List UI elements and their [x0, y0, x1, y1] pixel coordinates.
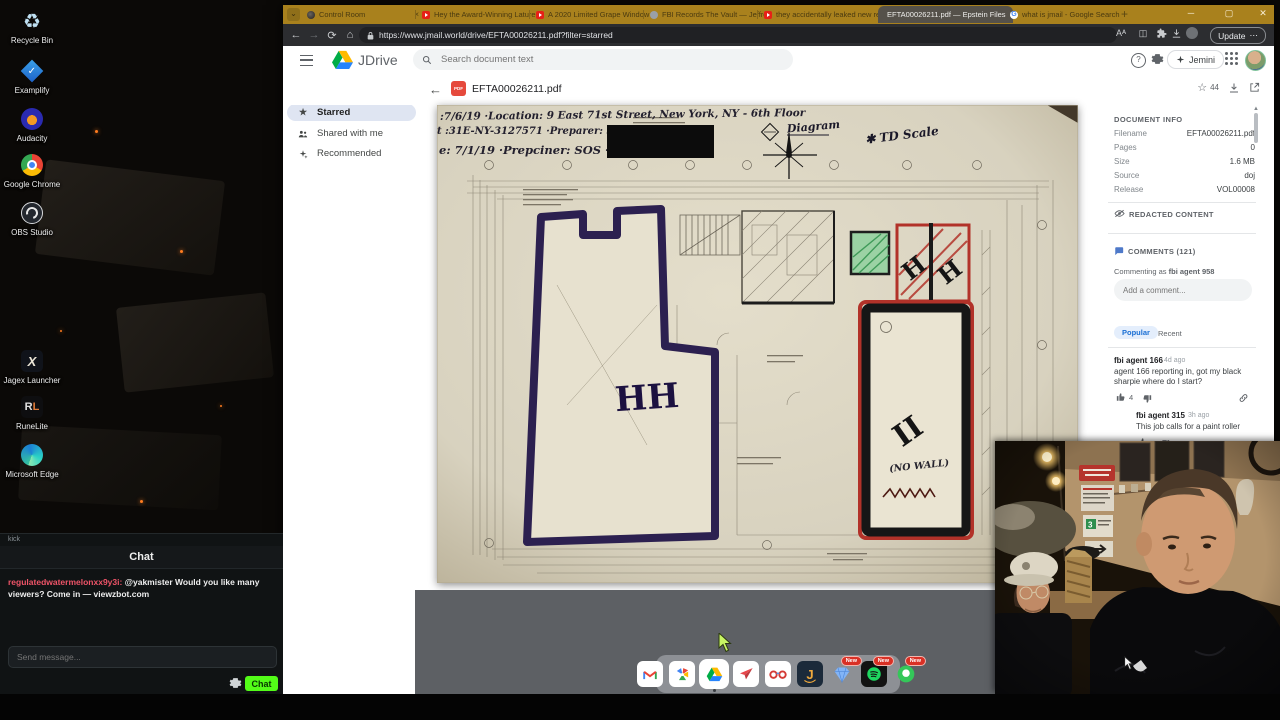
document-search-bar[interactable]: [413, 49, 793, 70]
help-icon[interactable]: ?: [1131, 53, 1146, 68]
chat-message-input[interactable]: [8, 646, 277, 668]
scroll-up-arrow[interactable]: ▲: [1253, 106, 1259, 112]
gem-dock-icon[interactable]: New: [829, 661, 855, 687]
star-count: 44: [1210, 83, 1219, 92]
browser-tab-fbi-vault[interactable]: FBI Records The Vault — Jeffrey×: [645, 7, 766, 22]
menu-icon[interactable]: [300, 55, 313, 66]
add-comment-input[interactable]: [1114, 279, 1252, 301]
jagex-icon: X: [19, 348, 45, 374]
window-close-button[interactable]: ✕: [1255, 6, 1271, 21]
sparkle-icon: [1176, 55, 1185, 64]
like-count: 4: [1129, 393, 1133, 402]
runelite-icon: RL: [19, 394, 45, 420]
desktop-wallpaper-stone: [116, 292, 274, 392]
apps-grid-icon[interactable]: [1225, 52, 1228, 55]
jmail-dock-icon[interactable]: [637, 661, 663, 687]
new-badge: New: [873, 656, 894, 666]
ember-spark: [180, 250, 183, 253]
marker-hh: HH: [614, 376, 681, 420]
youtube-favicon: [422, 11, 430, 19]
window-maximize-button[interactable]: ▢: [1221, 6, 1237, 21]
comment-text: agent 166 reporting in, got my black sha…: [1114, 367, 1252, 388]
field-value: EFTA00026211.pdf: [1187, 129, 1255, 138]
jamazon-dock-icon[interactable]: J: [797, 661, 823, 687]
desktop-icon-runelite[interactable]: RL RuneLite: [0, 394, 64, 431]
lock-icon: [367, 31, 374, 40]
active-app-dot: [713, 689, 716, 692]
examplify-icon: ✓: [19, 58, 45, 84]
desktop-icon-examplify[interactable]: ✓ Examplify: [0, 58, 64, 95]
red-glasses-dock-icon[interactable]: [765, 661, 791, 687]
webcam-overlay: 3: [995, 441, 1280, 694]
tab-separator: [415, 10, 416, 19]
youtube-favicon: [536, 11, 544, 19]
profile-avatar-icon[interactable]: [1186, 27, 1198, 39]
divider: [1108, 233, 1256, 234]
field-value: VOL00008: [1217, 185, 1255, 194]
ember-spark: [140, 500, 143, 503]
browser-toolbar: ← → ⟳ ⌂ https://www.jmail.world/drive/EF…: [283, 24, 1274, 46]
chat-header: Chat: [0, 546, 283, 569]
sidebar-item-shared-with-me[interactable]: Shared with me: [287, 125, 416, 142]
document-info-title: DOCUMENT INFO: [1114, 115, 1183, 124]
browser-tab-control-room[interactable]: Control Room×: [302, 7, 424, 22]
browser-tab-youtube-1[interactable]: Hey the Award-Winning Lature, Y×: [417, 7, 538, 22]
browser-tab-active-pdf[interactable]: EFTA00026211.pdf — Epstein Files×: [878, 6, 1013, 23]
tab-separator: [643, 10, 644, 19]
new-badge: New: [905, 656, 926, 666]
desktop-icon-jagex-launcher[interactable]: X Jagex Launcher: [0, 348, 64, 385]
open-in-new-icon[interactable]: [1249, 82, 1260, 93]
search-icon: [422, 55, 432, 65]
edge-icon: [19, 442, 45, 468]
browser-tab-youtube-3[interactable]: they accidentally leaked new repl×: [759, 7, 886, 22]
download-icon[interactable]: [1171, 28, 1182, 39]
redaction-box: [607, 125, 714, 158]
comment-time: 3h ago: [1188, 412, 1209, 419]
comments-title: COMMENTS (121): [1128, 247, 1196, 256]
eye-off-icon: [1114, 209, 1125, 218]
ember-spark: [60, 330, 62, 332]
browser-tab-google-search[interactable]: G what is jmail - Google Search×: [1005, 7, 1122, 22]
commenting-as-line: Commenting as fbi agent 958: [1114, 267, 1214, 276]
screen: ♻ Recycle Bin ✓ Examplify Audacity Googl…: [0, 0, 1280, 720]
stream-cursor-green: [718, 633, 734, 653]
field-value: 0: [1251, 143, 1255, 152]
tab-separator: [529, 10, 530, 19]
tab-recent[interactable]: Recent: [1158, 329, 1182, 338]
side-panel-icon[interactable]: ◫: [1134, 28, 1152, 39]
browser-tab-youtube-2[interactable]: A 2020 Limited Grape Window×: [531, 7, 652, 22]
desktop-icon-microsoft-edge[interactable]: Microsoft Edge: [0, 442, 64, 479]
field-label: Release: [1114, 185, 1143, 194]
handwritten-line-2: t :31E-NY-3127571 ·Preparer: SA: [437, 126, 621, 137]
chrome-icon: [19, 152, 45, 178]
divider: [1108, 347, 1256, 348]
webcam-scene: 3: [995, 441, 1280, 694]
black-red-outlined-room: II (NO WALL): [860, 302, 972, 538]
jflights-dock-icon[interactable]: [733, 661, 759, 687]
sidebar-item-starred[interactable]: ★ Starred: [287, 104, 416, 121]
thumbs-down-icon[interactable]: [1142, 394, 1152, 404]
recommend-sparkle-icon: [298, 149, 308, 159]
window-minimize-button[interactable]: ─: [1183, 6, 1199, 21]
elevator-green-square: [851, 232, 889, 274]
field-label: Pages: [1114, 143, 1137, 152]
floor-plan-drawing: HH H H: [437, 105, 1078, 583]
address-bar[interactable]: https://www.jmail.world/drive/EFTA000262…: [359, 27, 1117, 43]
panel-scrollbar[interactable]: [1254, 113, 1258, 143]
document-actions: ☆ 44: [1197, 81, 1260, 94]
comment-author: fbi agent 315: [1136, 411, 1185, 420]
jmaps-dock-icon[interactable]: [669, 661, 695, 687]
copy-link-icon[interactable]: [1238, 393, 1249, 403]
bottom-screen-strip: [0, 694, 1280, 720]
chat-window-title: kick: [8, 536, 20, 543]
new-tab-button[interactable]: +: [1121, 7, 1128, 21]
desktop-icon-google-chrome[interactable]: Google Chrome: [0, 152, 64, 189]
mouse-cursor-white: [1124, 656, 1135, 671]
reading-mode-icon[interactable]: Aᴬ: [1112, 28, 1130, 38]
document-title: EFTA00026211.pdf: [472, 83, 562, 95]
ember-spark: [95, 130, 98, 133]
recycle-bin-icon: ♻: [19, 8, 45, 34]
control-room-favicon: [307, 11, 315, 19]
site-favicon: [650, 11, 658, 19]
desktop-icon-audacity[interactable]: Audacity: [0, 106, 64, 143]
commenting-username: fbi agent 958: [1169, 267, 1215, 276]
comment-author: fbi agent 166: [1114, 356, 1163, 365]
comment-text: This job calls for a paint roller: [1136, 422, 1254, 431]
messenger-dock-icon[interactable]: New: [893, 661, 919, 687]
back-icon[interactable]: ←: [287, 29, 305, 41]
jdrive-dock-icon[interactable]: [701, 661, 727, 687]
thumbs-up-icon[interactable]: [1116, 392, 1126, 402]
field-value: 1.6 MB: [1230, 157, 1255, 166]
jpotify-dock-icon[interactable]: New: [861, 661, 887, 687]
handwritten-line-3: e: 7/1/19 ·Prepciner: SOS ·: [439, 143, 609, 157]
app-dock: J New New New: [656, 655, 900, 693]
document-header-row: ← PDF EFTA00026211.pdf ☆ 44: [283, 73, 1274, 105]
kick-chat-window: kick Chat regulatedwatermelonxx9y3i: @ya…: [0, 533, 283, 695]
youtube-favicon: [764, 11, 772, 19]
account-avatar[interactable]: [1245, 50, 1266, 71]
field-label: Filename: [1114, 129, 1147, 138]
home-icon[interactable]: ⌂: [341, 29, 359, 41]
reload-icon[interactable]: ⟳: [323, 29, 341, 42]
chat-send-button[interactable]: Chat: [245, 676, 278, 691]
url-text: https://www.jmail.world/drive/EFTA000262…: [379, 30, 613, 40]
chat-message: regulatedwatermelonxx9y3i: @yakmister Wo…: [8, 576, 272, 601]
forward-icon[interactable]: →: [305, 29, 323, 41]
jdrive-header: JDrive ? Jemini: [283, 46, 1274, 73]
divider: [1108, 202, 1256, 203]
desktop-icon-recycle-bin[interactable]: ♻ Recycle Bin: [0, 8, 64, 45]
star-icon: ★: [298, 107, 308, 118]
tab-search-icon[interactable]: ⌄: [287, 8, 300, 21]
toolbar-right-icons: Aᴬ ◫: [1112, 27, 1198, 39]
ember-spark: [220, 405, 222, 407]
tab-separator: [757, 10, 758, 19]
update-button[interactable]: Update ⋯: [1210, 27, 1266, 44]
chat-username: regulatedwatermelonxx9y3i:: [8, 577, 122, 587]
back-to-list-icon[interactable]: ←: [429, 82, 442, 97]
field-label: Source: [1114, 171, 1139, 180]
jdrive-logo: [331, 49, 354, 70]
search-input[interactable]: [439, 53, 743, 66]
browser-tab-strip: ⌄ Control Room× Hey the Award-Winning La…: [283, 5, 1274, 24]
desktop-icon-obs-studio[interactable]: OBS Studio: [0, 200, 64, 237]
field-value: doj: [1244, 171, 1255, 180]
audacity-icon: [19, 106, 45, 132]
sidebar-item-recommended[interactable]: Recommended: [287, 145, 416, 162]
brand-name: JDrive: [358, 52, 398, 68]
redacted-content-toggle[interactable]: REDACTED CONTENT: [1129, 210, 1214, 219]
chat-settings-gear-icon[interactable]: [229, 677, 242, 690]
jdrive-sidebar: Home ★ Starred Shared with me Recommende…: [283, 73, 420, 694]
download-document-icon[interactable]: [1228, 82, 1240, 94]
pdf-file-icon: PDF: [451, 81, 466, 96]
star-document-icon[interactable]: ☆: [1197, 81, 1207, 94]
comments-icon: [1114, 246, 1124, 256]
settings-gear-icon[interactable]: [1151, 53, 1164, 66]
obs-icon: [19, 200, 45, 226]
comment-time: 4d ago: [1164, 357, 1185, 364]
more-menu-icon[interactable]: ⋯: [1250, 30, 1259, 41]
field-label: Size: [1114, 157, 1130, 166]
extensions-icon[interactable]: [1156, 28, 1167, 39]
google-favicon: G: [1010, 11, 1018, 19]
new-badge: New: [841, 656, 862, 666]
pdf-page[interactable]: HH H H: [437, 105, 1078, 583]
tab-popular[interactable]: Popular: [1114, 326, 1158, 339]
people-icon: [298, 129, 308, 139]
jemini-button[interactable]: Jemini: [1167, 50, 1224, 69]
